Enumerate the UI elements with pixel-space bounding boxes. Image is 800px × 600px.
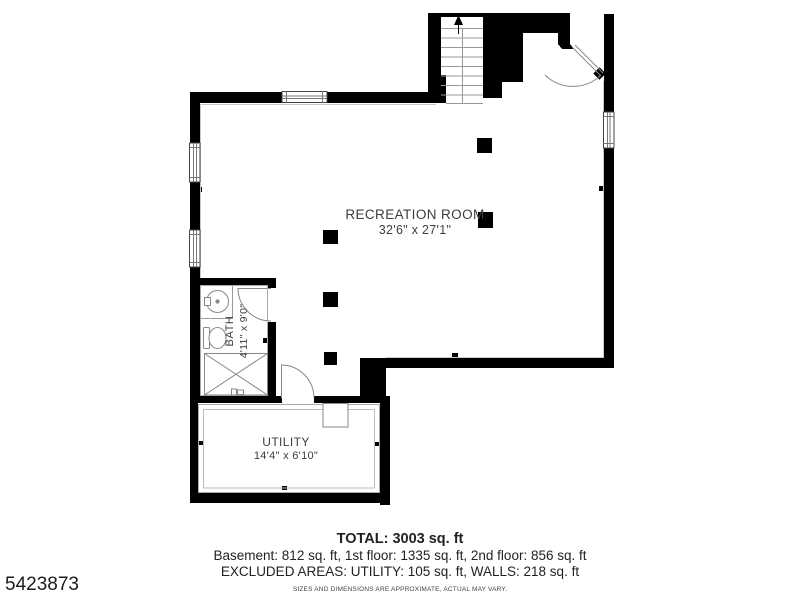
room-name: BATH [224, 266, 237, 396]
room-dimensions: 4'11" x 9'0" [238, 266, 251, 396]
disclaimer-text: SIZES AND DIMENSIONS ARE APPROXIMATE, AC… [0, 586, 800, 593]
excluded-areas-text: EXCLUDED AREAS: UTILITY: 105 sq. ft, WAL… [0, 564, 800, 579]
door-swing-icon [281, 365, 314, 398]
toilet-icon [204, 328, 227, 349]
column-posts [323, 138, 493, 365]
bath-room-label: BATH 4'11" x 9'0" [224, 266, 256, 396]
floor-plan-page: RECREATION ROOM 32'6" x 27'1" BATH 4'11"… [0, 0, 800, 600]
room-dimensions: 14'4" x 6'10" [211, 450, 361, 462]
room-name: RECREATION ROOM [315, 207, 515, 222]
floor-plan-drawing [0, 0, 800, 600]
window-icon [190, 230, 201, 267]
window-icon [282, 92, 327, 103]
utility-room-label: UTILITY 14'4" x 6'10" [211, 435, 361, 462]
area-summary: TOTAL: 3003 sq. ft Basement: 812 sq. ft,… [0, 531, 800, 593]
walls [190, 13, 614, 505]
column-post [477, 138, 492, 153]
floor-areas-text: Basement: 812 sq. ft, 1st floor: 1335 sq… [0, 548, 800, 563]
window-icon [604, 112, 615, 148]
room-name: UTILITY [211, 435, 361, 449]
room-dimensions: 32'6" x 27'1" [315, 223, 515, 237]
hvac-unit-icon [323, 404, 348, 428]
column-post [324, 352, 337, 365]
total-area-text: TOTAL: 3003 sq. ft [0, 531, 800, 547]
recreation-room-label: RECREATION ROOM 32'6" x 27'1" [315, 207, 515, 237]
stairs-icon [441, 15, 483, 104]
door-swing-icon [545, 45, 603, 86]
window-icon [190, 143, 201, 182]
column-post [323, 292, 338, 307]
listing-id: 5423873 [5, 574, 79, 596]
